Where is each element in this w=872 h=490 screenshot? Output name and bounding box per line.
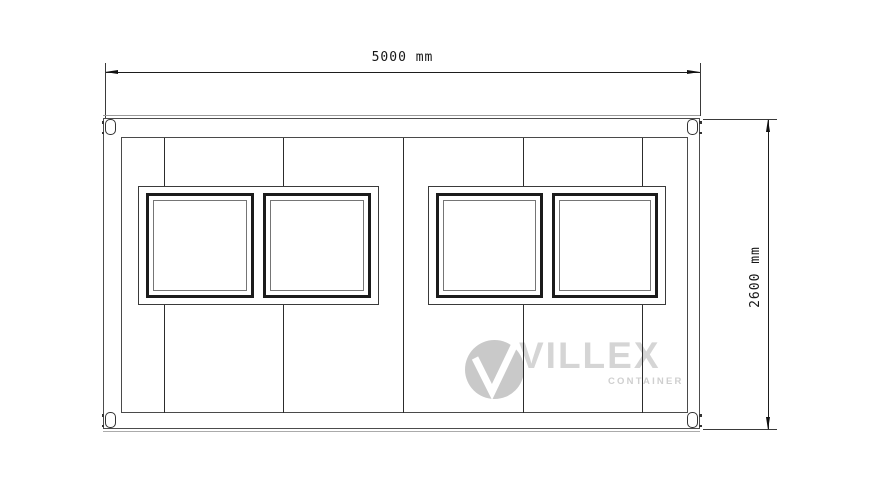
watermark-subtitle-text: CONTAINER [608, 377, 674, 387]
casting-dot [102, 414, 105, 417]
watermark-logo-circle [465, 340, 524, 399]
dim-arrow-down-icon [766, 417, 770, 430]
window [436, 193, 543, 298]
casting-dot [102, 121, 105, 124]
corner-casting-top-right [687, 119, 698, 135]
casting-dot [699, 414, 702, 417]
height-dimension-line [768, 119, 769, 430]
window-glass [443, 200, 536, 291]
casting-dot [102, 132, 105, 135]
window [552, 193, 659, 298]
watermark-brand-text: VILLEX [519, 337, 661, 374]
watermark-v-checkmark-icon [465, 340, 524, 399]
dim-arrow-up-icon [766, 119, 770, 132]
roof-edge-line [103, 115, 700, 116]
width-extension-line-right [700, 63, 701, 116]
window [263, 193, 371, 298]
window [146, 193, 254, 298]
dim-arrow-right-icon [687, 70, 700, 74]
window-glass [270, 200, 364, 291]
casting-dot [102, 425, 105, 428]
width-dimension-line [105, 72, 700, 73]
width-dimension-label: 5000 mm [330, 50, 475, 65]
panel-seam [403, 138, 404, 413]
bottom-edge-line [103, 431, 700, 432]
casting-dot [699, 121, 702, 124]
window-glass [559, 200, 652, 291]
casting-dot [699, 425, 702, 428]
window-pair-left [138, 186, 379, 305]
window-glass [153, 200, 247, 291]
dim-arrow-left-icon [105, 70, 118, 74]
window-pair-right [428, 186, 666, 305]
corner-casting-bottom-right [687, 412, 698, 428]
container-elevation-drawing: { "drawing": { "type": "container-front-… [0, 0, 872, 490]
casting-dot [699, 132, 702, 135]
height-dimension-label: 2600 mm [748, 231, 764, 323]
corner-casting-top-left [105, 119, 116, 135]
corner-casting-bottom-left [105, 412, 116, 428]
